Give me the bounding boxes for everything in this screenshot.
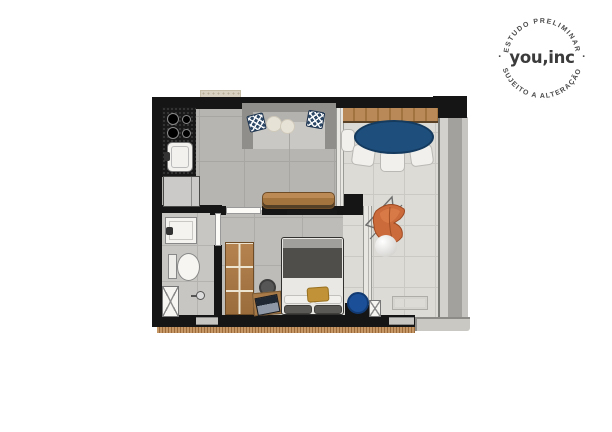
svg-text:SUJEITO A ALTERAÇÃO: SUJEITO A ALTERAÇÃO — [501, 67, 583, 100]
burner-icon — [182, 115, 191, 124]
wall-bath-right — [214, 245, 222, 317]
mustard-cushion — [307, 286, 330, 302]
logo-brand: you,inc — [509, 48, 574, 67]
window-bathroom — [196, 317, 218, 325]
floor-plan-sheet: ESTUDO PRELIMINAR SUJEITO A ALTERAÇÃO · … — [0, 0, 612, 432]
faucet-icon — [164, 152, 170, 161]
bed-blanket — [283, 248, 342, 278]
pillar-bathroom — [162, 286, 179, 317]
decor-sphere — [375, 235, 397, 257]
pillar-balcony — [369, 300, 381, 317]
toilet-bowl — [177, 253, 200, 281]
youinc-logo: ESTUDO PRELIMINAR SUJEITO A ALTERAÇÃO · … — [490, 6, 594, 110]
round-dining-table — [354, 120, 434, 154]
bed-fold — [283, 239, 342, 248]
toilet-tank — [168, 254, 177, 279]
logo-arc-bottom: SUJEITO A ALTERAÇÃO — [501, 67, 583, 100]
bed-pillow — [314, 305, 342, 314]
window-bedroom — [389, 317, 414, 325]
exterior-brick-hatch — [157, 327, 415, 333]
wall-left — [152, 97, 162, 327]
sofa-arm-right — [325, 103, 336, 149]
bed-pillow — [284, 305, 312, 314]
chevron-pillow — [306, 110, 326, 130]
burner-icon — [167, 127, 179, 139]
logo-dot-left: · — [498, 51, 502, 63]
cream-cushion — [280, 119, 295, 134]
door-bedroom — [226, 207, 261, 214]
kitchen-sink — [167, 142, 193, 172]
wardrobe — [225, 242, 254, 315]
wall-balcony-top-right — [433, 96, 467, 118]
tv — [287, 210, 337, 215]
faucet-icon — [166, 227, 173, 235]
shower-head-icon — [196, 291, 205, 300]
burner-icon — [167, 113, 179, 125]
balcony-railing-bottom — [415, 317, 470, 331]
door-bathroom — [215, 213, 221, 246]
balcony-railing-right — [438, 117, 468, 318]
burner-icon — [182, 129, 191, 138]
floor-drain — [392, 296, 428, 310]
sideboard — [262, 192, 335, 209]
logo-dot-right: · — [582, 51, 586, 63]
refrigerator — [163, 176, 200, 207]
blue-pouf — [347, 292, 369, 314]
